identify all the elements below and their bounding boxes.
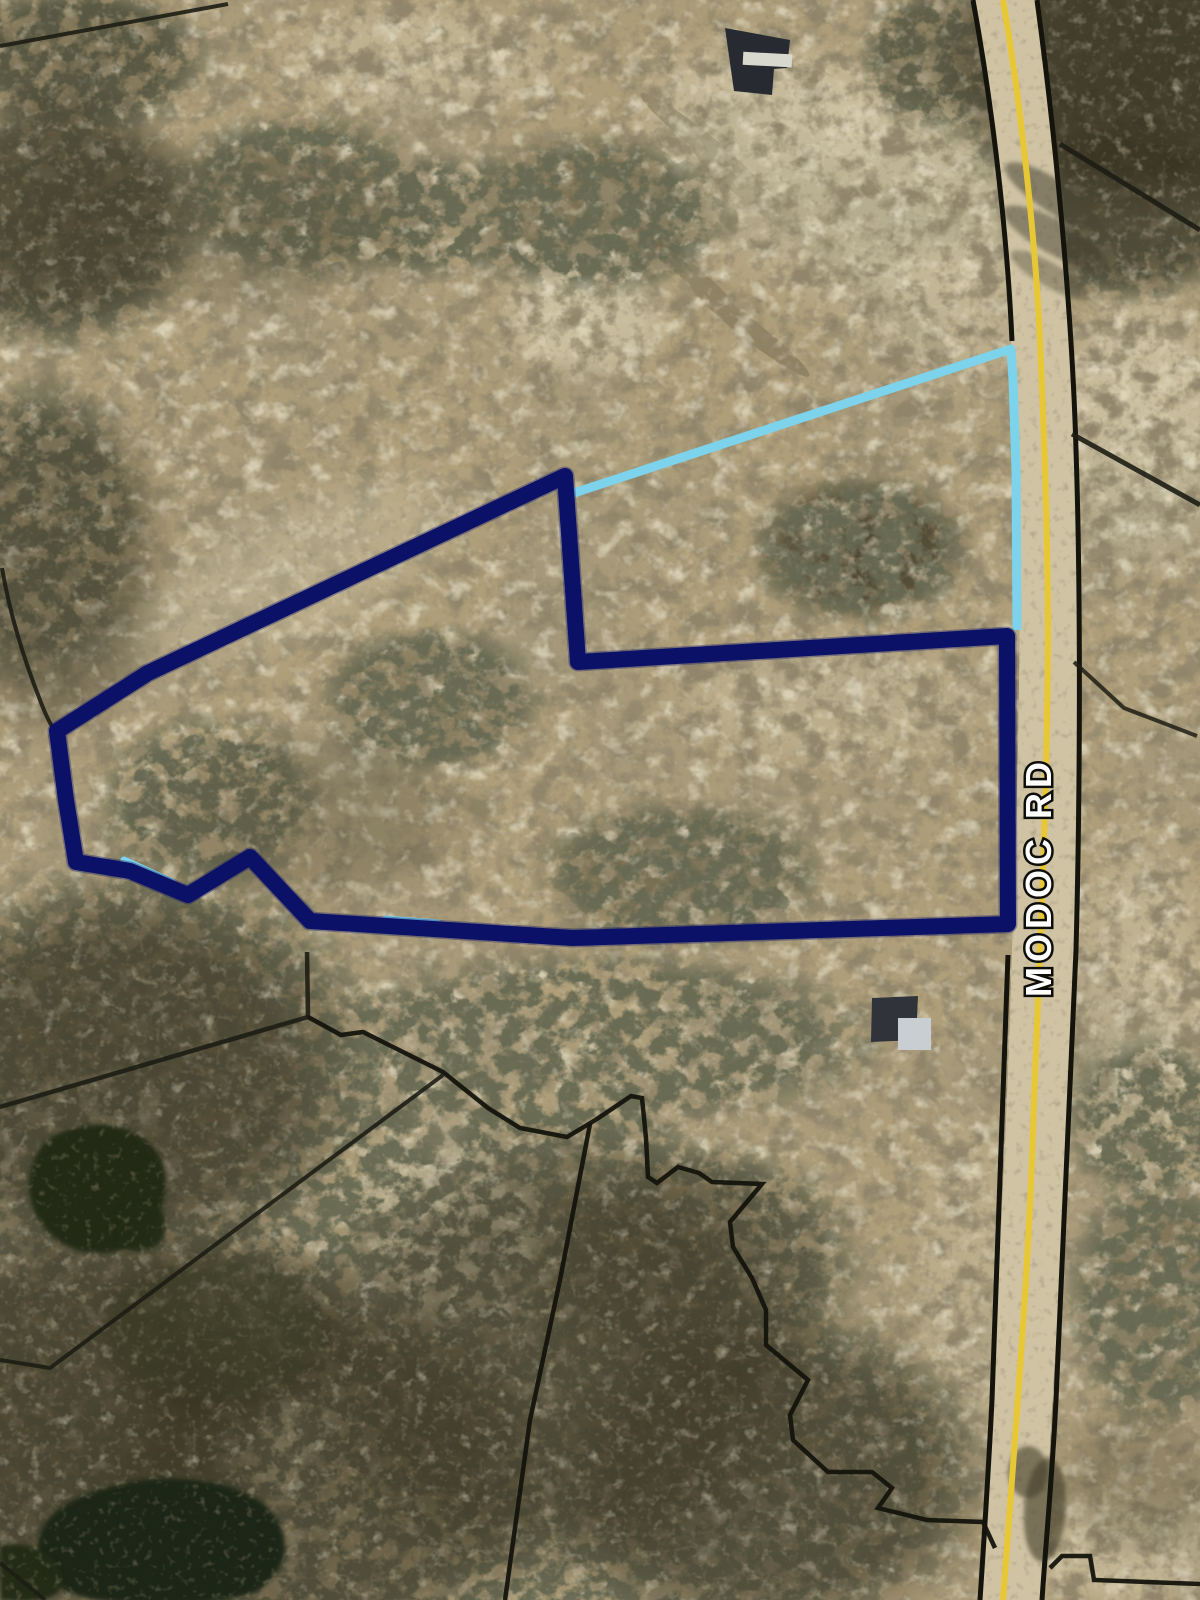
svg-text:MODOC RD: MODOC RD [1018, 757, 1059, 997]
